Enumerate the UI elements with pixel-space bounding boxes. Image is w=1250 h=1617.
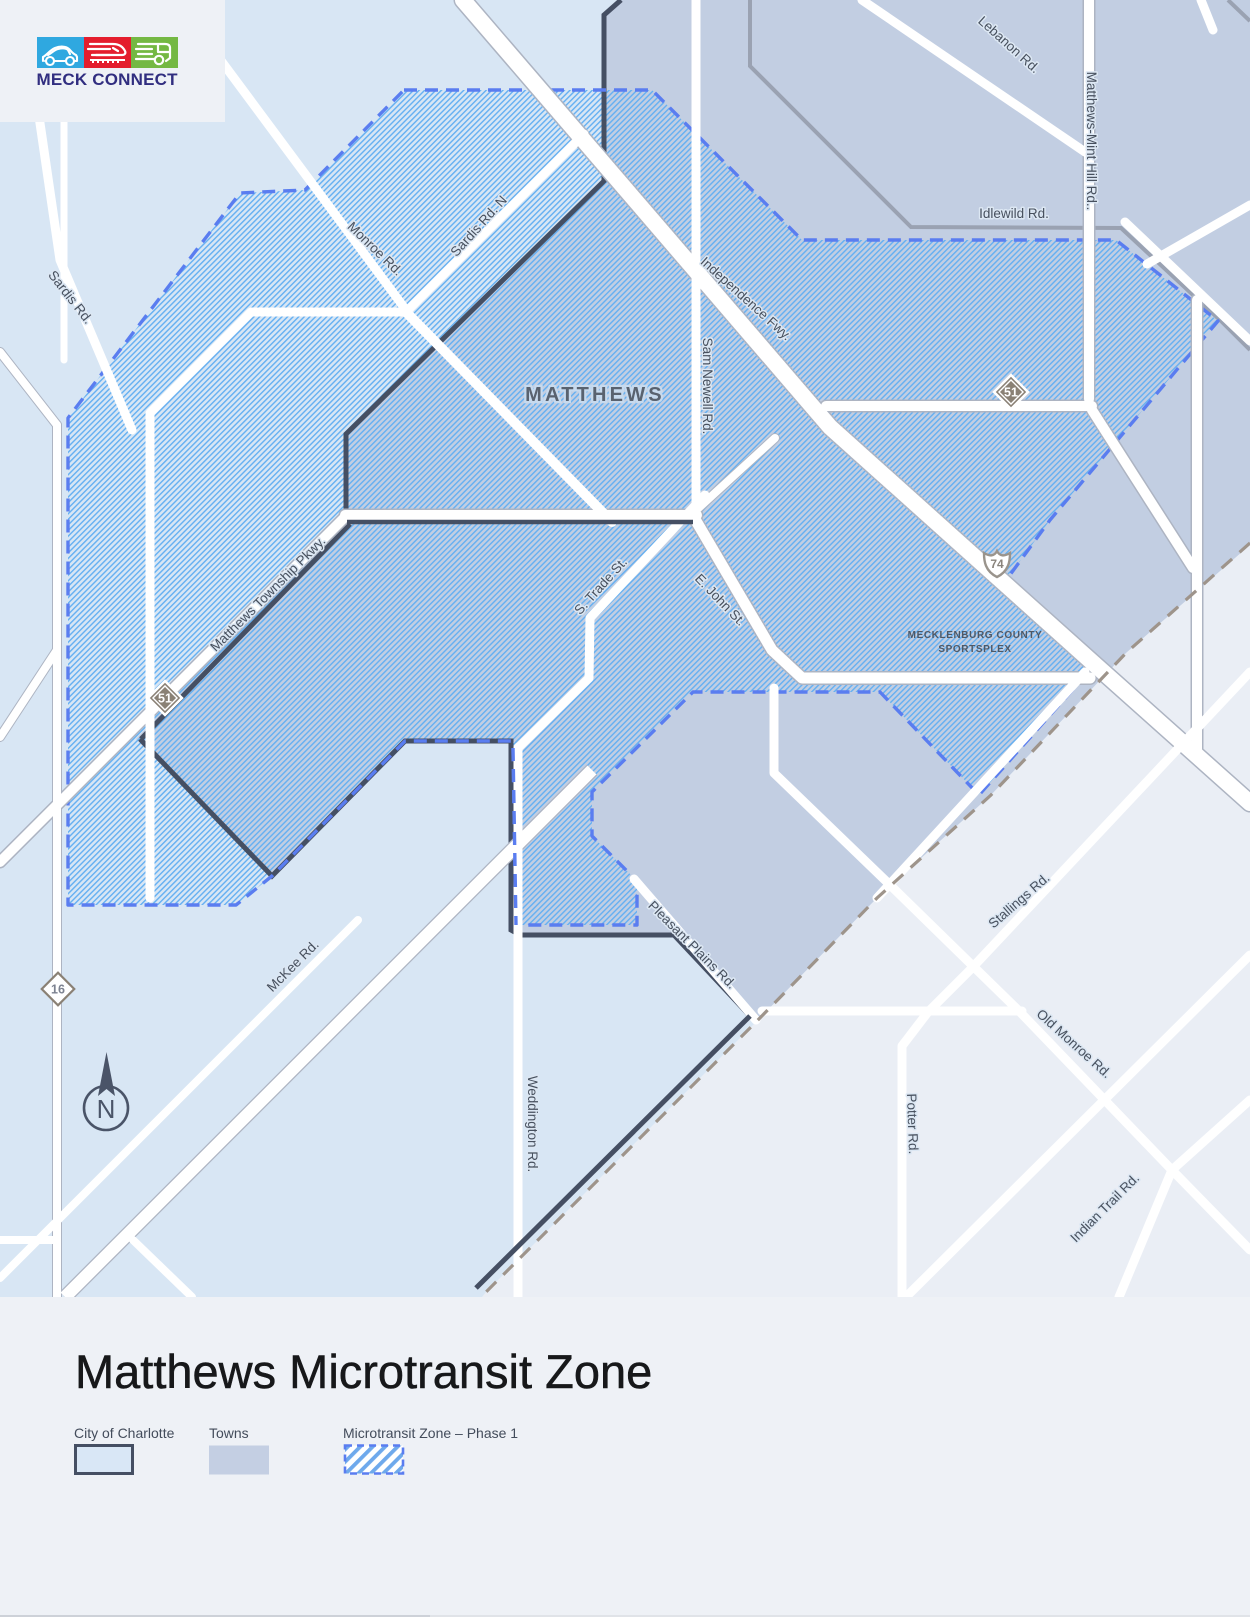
svg-text:74: 74 xyxy=(990,557,1004,571)
svg-text:Matthews-Mint Hill Rd..: Matthews-Mint Hill Rd.. xyxy=(1084,72,1099,211)
svg-text:51: 51 xyxy=(1004,386,1018,400)
svg-text:MECK CONNECT: MECK CONNECT xyxy=(37,70,179,89)
svg-text:MECKLENBURG COUNTY: MECKLENBURG COUNTY xyxy=(908,630,1043,641)
svg-text:Idlewild Rd.: Idlewild Rd. xyxy=(979,206,1049,221)
svg-text:Potter Rd.: Potter Rd. xyxy=(904,1093,921,1154)
svg-text:16: 16 xyxy=(51,983,65,997)
svg-text:51: 51 xyxy=(158,692,172,706)
svg-text:MATTHEWS: MATTHEWS xyxy=(525,384,665,406)
svg-text:SPORTSPLEX: SPORTSPLEX xyxy=(938,644,1011,655)
svg-text:Weddington Rd.: Weddington Rd. xyxy=(525,1076,540,1173)
svg-text:Sam Newell Rd.: Sam Newell Rd. xyxy=(700,338,715,435)
svg-text:N: N xyxy=(97,1094,116,1124)
